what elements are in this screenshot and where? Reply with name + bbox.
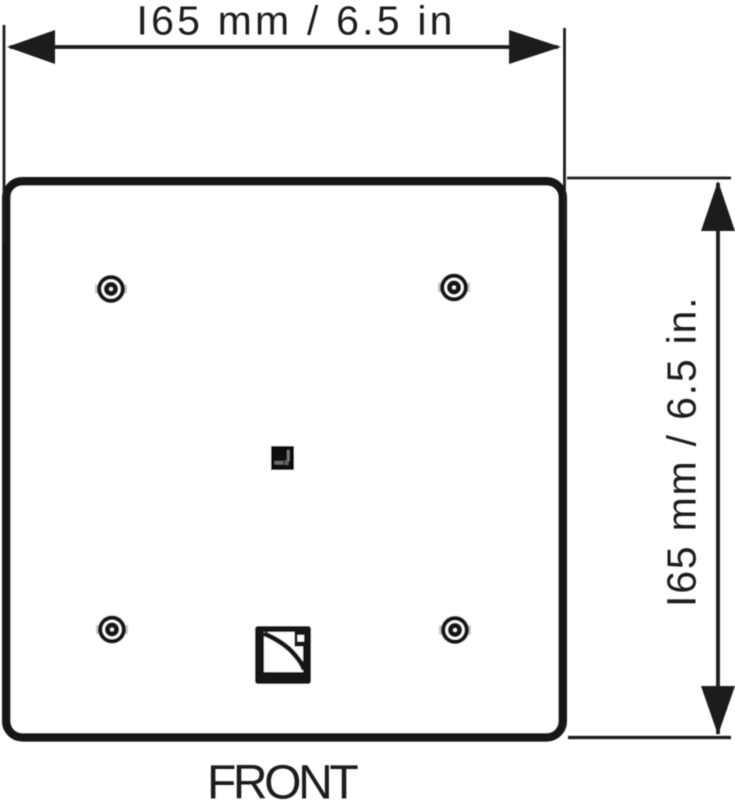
svg-text:I65 mm / 6.5 in.: I65 mm / 6.5 in. <box>659 296 705 607</box>
svg-text:I65 mm / 6.5 in: I65 mm / 6.5 in <box>137 0 456 44</box>
svg-text:FRONT: FRONT <box>207 757 358 800</box>
